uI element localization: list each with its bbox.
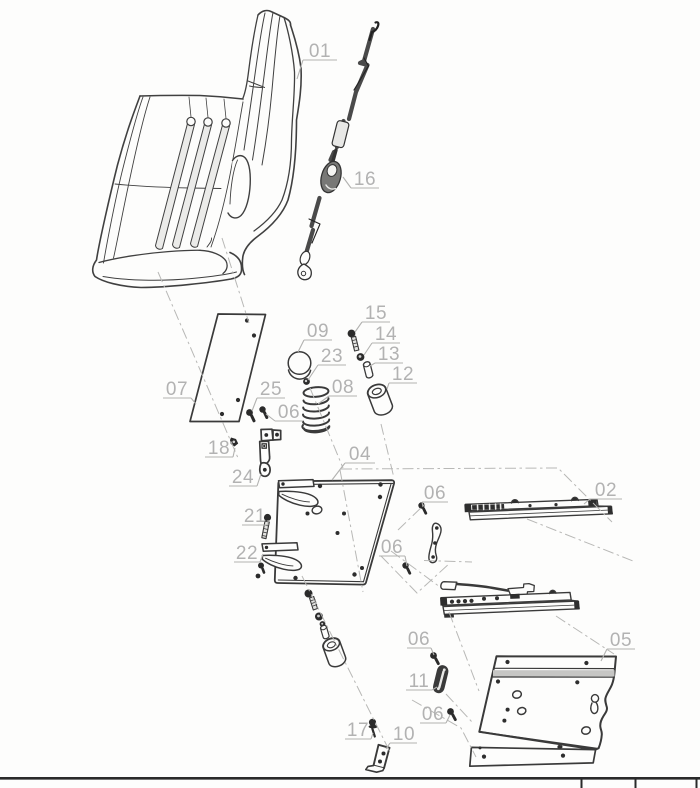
svg-text:07: 07 bbox=[166, 379, 188, 400]
svg-text:16: 16 bbox=[354, 169, 376, 190]
svg-text:04: 04 bbox=[349, 444, 371, 465]
svg-text:12: 12 bbox=[392, 364, 414, 385]
svg-text:09: 09 bbox=[307, 321, 329, 342]
svg-text:18: 18 bbox=[208, 438, 230, 459]
svg-text:10: 10 bbox=[393, 724, 415, 745]
svg-text:13: 13 bbox=[378, 344, 400, 365]
svg-text:06: 06 bbox=[424, 483, 446, 504]
svg-text:06: 06 bbox=[408, 629, 430, 650]
svg-text:24: 24 bbox=[232, 467, 254, 488]
svg-text:08: 08 bbox=[332, 377, 354, 398]
svg-text:06: 06 bbox=[381, 537, 403, 558]
svg-text:22: 22 bbox=[236, 543, 258, 564]
svg-text:11: 11 bbox=[409, 671, 430, 692]
svg-text:25: 25 bbox=[260, 379, 282, 400]
svg-text:14: 14 bbox=[375, 324, 397, 345]
svg-text:23: 23 bbox=[321, 346, 343, 367]
svg-text:05: 05 bbox=[610, 630, 632, 651]
svg-text:02: 02 bbox=[595, 480, 617, 501]
svg-text:06: 06 bbox=[422, 704, 444, 725]
svg-text:21: 21 bbox=[244, 506, 266, 527]
svg-text:01: 01 bbox=[309, 41, 331, 62]
svg-text:15: 15 bbox=[365, 303, 387, 324]
svg-text:06: 06 bbox=[278, 402, 300, 423]
svg-text:17: 17 bbox=[347, 720, 369, 741]
